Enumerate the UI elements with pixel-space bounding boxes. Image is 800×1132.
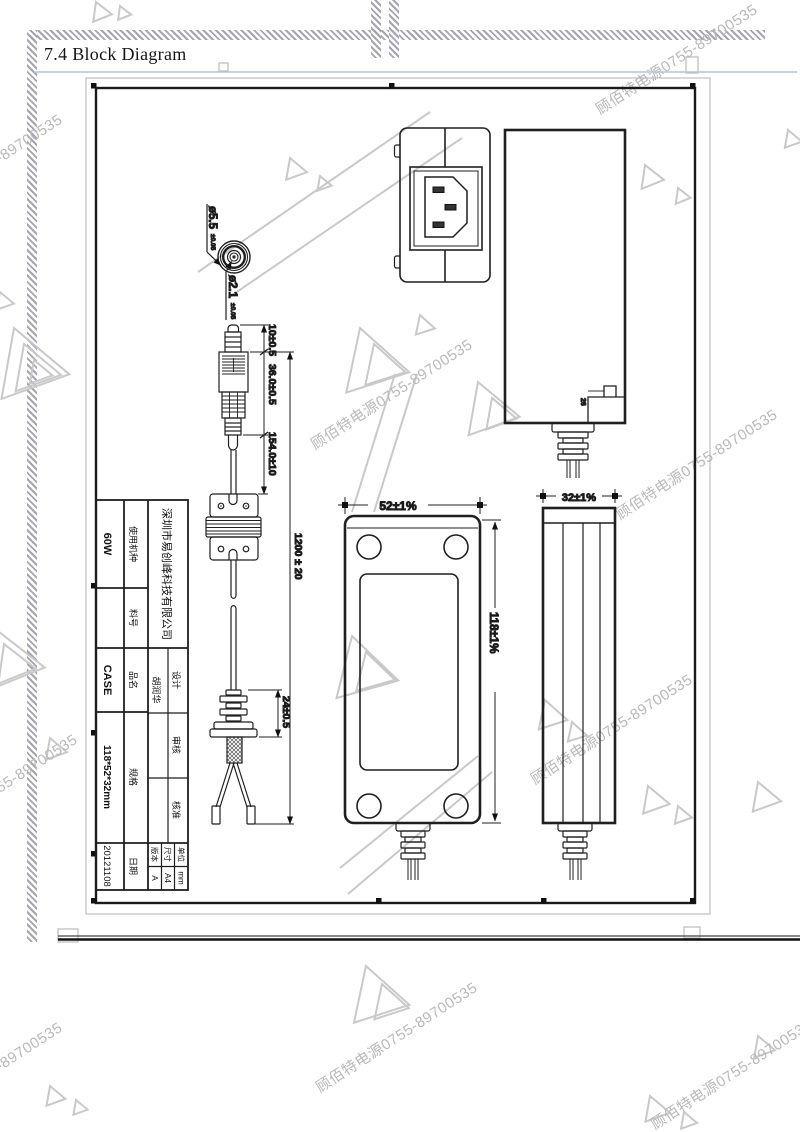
watermark-text: 顾佰特电源0755-89700535: [0, 111, 66, 228]
watermark-text: 顾佰特电源0755-89700535: [593, 1, 761, 118]
dc-cord-dimensions: 10±0.5 36.0±0.5 154.0±10 1200 ± 20 24±0.…: [240, 324, 304, 824]
titleblock-sheet-label: 尺寸: [163, 847, 173, 862]
titleblock-unit-label: 单位: [177, 847, 187, 862]
dim-notch-detail: 26: [579, 398, 586, 406]
watermark-triangle: [0, 292, 15, 312]
dim-overall-length: 1200 ± 20: [292, 533, 304, 580]
watermark-text: 顾佰特电源0755-89700535: [0, 1019, 66, 1132]
titleblock-date-value: 20121108: [101, 845, 112, 887]
titleblock-design-label: 设计: [171, 671, 182, 689]
watermark-triangle: [0, 628, 49, 699]
titleblock-review-label: 审核: [171, 736, 182, 754]
watermark-line: [348, 772, 492, 894]
dc-cord-side-view: [206, 325, 261, 824]
watermark-triangle: [675, 806, 694, 826]
dim-adapter-thickness: 32±1%: [562, 492, 596, 504]
dim-adapter-width: 52±1%: [379, 499, 417, 513]
titleblock-rev-value: A: [150, 875, 159, 881]
dim-plug-to-ferrite: 154.0±10: [266, 432, 278, 476]
titleblock-approve-label: 核准: [171, 801, 182, 819]
watermark-triangle: [47, 1086, 68, 1109]
dim-tip-length: 10±0.5: [266, 324, 278, 356]
dim-outer-diameter: ø5.5: [206, 206, 218, 230]
ac-inlet-pins: [433, 187, 456, 228]
watermark-triangle: [1, 328, 75, 410]
watermark-triangle: [337, 636, 407, 712]
watermark-text: 顾佰特电源0755-89700535: [613, 406, 781, 523]
titleblock-product-label: 品名: [128, 671, 139, 689]
watermark-text: 顾佰特电源0755-89700535: [528, 671, 696, 788]
titleblock-date-label: 日期: [128, 857, 138, 875]
title-block: 60W 使用机种 料号 CASE 品名 118*52*32mm 规格 20121…: [96, 500, 188, 890]
document-page: 7.4 Block Diagram 顾佰特电源0755-89700535 顾佰特…: [0, 0, 800, 1132]
dim-outer-tolerance: ±0.05: [209, 234, 216, 251]
watermark-triangle: [785, 130, 800, 150]
titleblock-usage-value: 60W: [101, 533, 113, 556]
watermark-triangle: [118, 6, 132, 22]
adapter-top-view: 26: [505, 130, 625, 478]
titleblock-spec-label: 规格: [128, 768, 139, 786]
watermark-triangle: [286, 158, 309, 183]
dim-inner-tolerance: ±0.05: [229, 303, 236, 320]
watermark-text: 顾佰特电源0755-89700535: [308, 336, 476, 453]
watermark-fragment: [219, 63, 228, 71]
titleblock-designer: 胡润华: [151, 676, 162, 703]
titleblock-rev-label: 版本: [150, 847, 160, 862]
titleblock-usage-label: 使用机种: [128, 526, 139, 562]
watermark-triangle: [676, 188, 692, 206]
watermark-triangle: [642, 165, 666, 192]
watermark-triangle: [753, 782, 784, 816]
dim-inner-diameter: ø2.1: [226, 275, 238, 299]
titleblock-company: 深圳市易创峰科技有限公司: [160, 508, 174, 640]
watermark-triangle: [93, 2, 113, 24]
dim-adapter-length: 118±1%: [487, 612, 499, 654]
diagram-canvas: 顾佰特电源0755-89700535 顾佰特电源0755-89700535 顾佰…: [0, 0, 800, 1132]
watermark-triangle: [469, 382, 525, 443]
watermark-line: [340, 756, 478, 868]
adapter-side-view: 32±1%: [536, 489, 622, 880]
watermark-line: [228, 138, 462, 298]
titleblock-spec-value: 118*52*32mm: [101, 745, 112, 809]
titleblock-product-value: CASE: [101, 665, 113, 696]
titleblock-sheet-value: A4: [163, 873, 172, 883]
dim-plug-body-length: 36.0±0.5: [266, 364, 278, 405]
watermark-triangle: [73, 1100, 89, 1117]
watermark-text: 顾佰特电源0755-89700535: [648, 1016, 800, 1132]
watermark-line: [198, 112, 430, 272]
watermark-triangle: [0, 644, 38, 688]
frame-ticks: [91, 83, 696, 904]
watermark-text: 顾佰特电源0755-89700535: [0, 731, 81, 848]
titleblock-part-label: 料号: [128, 609, 139, 627]
dim-strain-relief-length: 24±0.5: [280, 696, 292, 728]
titleblock-unit-value: mm: [177, 871, 186, 885]
watermark-triangle: [643, 786, 672, 818]
watermark-triangle: [416, 315, 437, 338]
